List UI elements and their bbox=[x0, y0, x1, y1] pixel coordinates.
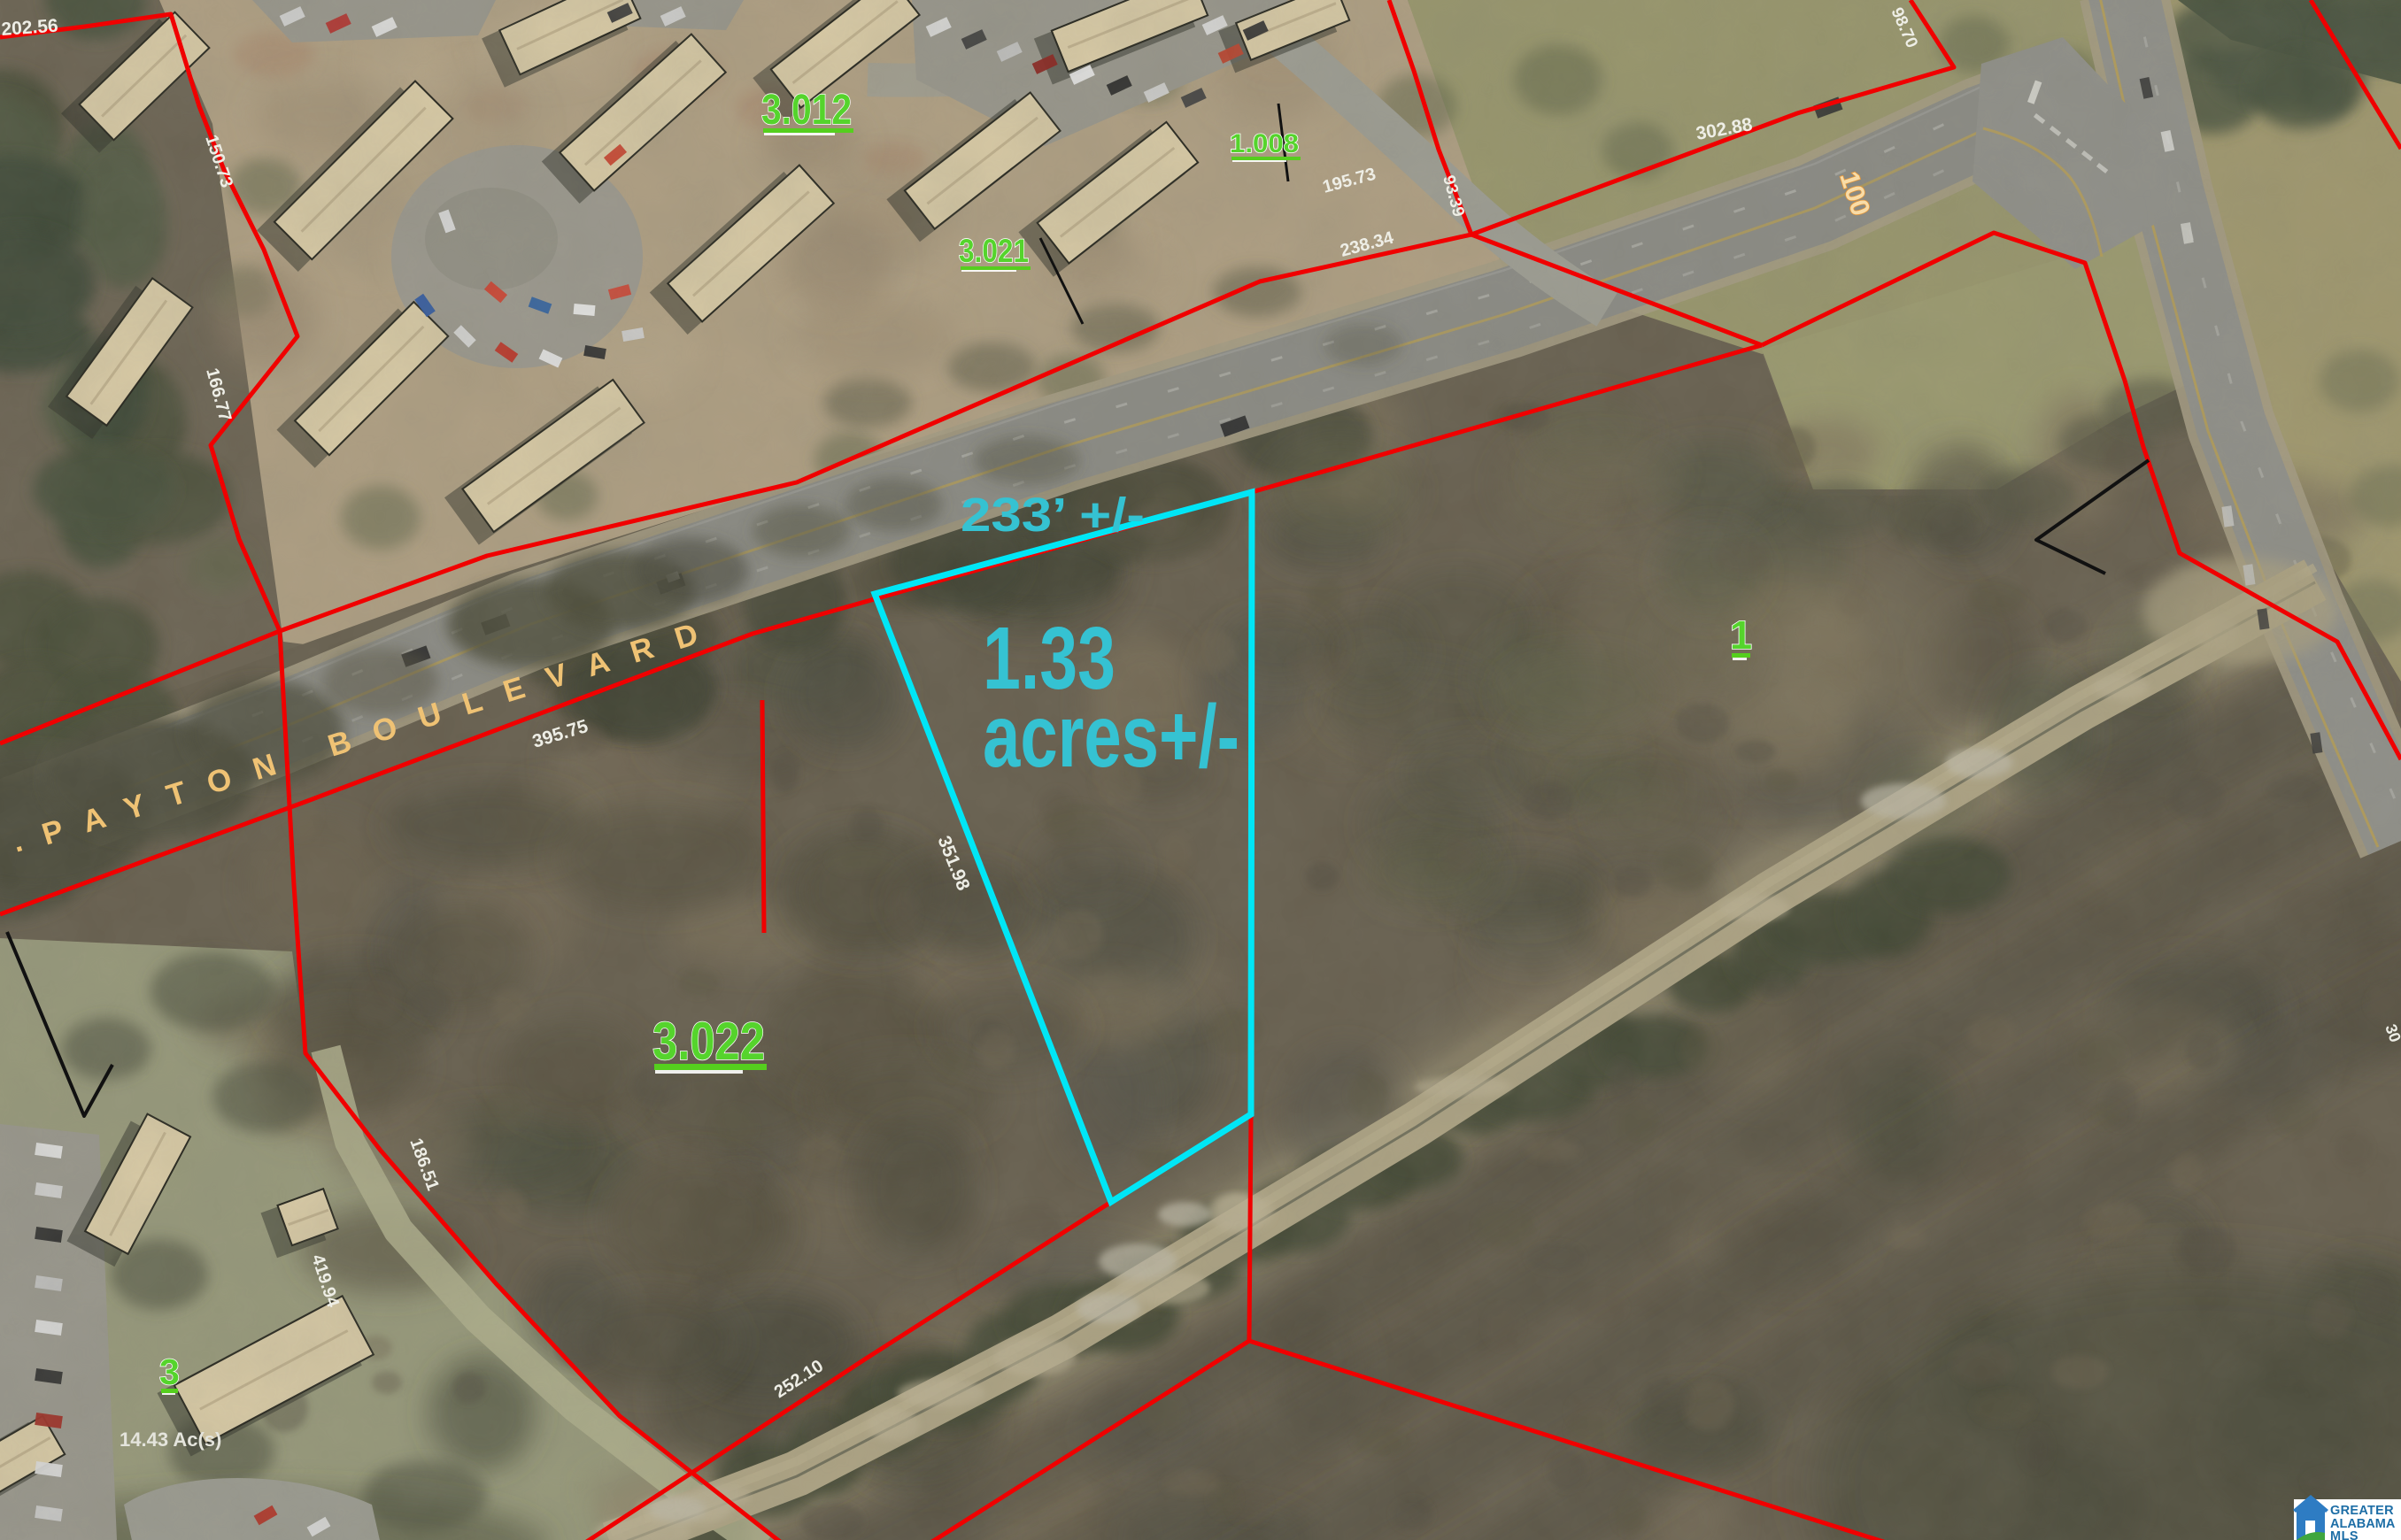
svg-text:3.021: 3.021 bbox=[959, 233, 1029, 269]
svg-text:3: 3 bbox=[159, 1351, 180, 1392]
svg-text:14.43 Ac(s): 14.43 Ac(s) bbox=[120, 1428, 221, 1451]
svg-text:acres+/-: acres+/- bbox=[983, 687, 1239, 786]
svg-text:1: 1 bbox=[1730, 612, 1752, 658]
svg-text:3.022: 3.022 bbox=[652, 1012, 765, 1071]
svg-text:GREATER: GREATER bbox=[2330, 1504, 2394, 1518]
svg-text:233’ +/-: 233’ +/- bbox=[961, 489, 1145, 542]
svg-text:202.56: 202.56 bbox=[1, 16, 59, 40]
svg-text:MLS: MLS bbox=[2330, 1529, 2359, 1540]
svg-text:3.012: 3.012 bbox=[761, 87, 852, 134]
svg-text:1.008: 1.008 bbox=[1230, 129, 1299, 158]
